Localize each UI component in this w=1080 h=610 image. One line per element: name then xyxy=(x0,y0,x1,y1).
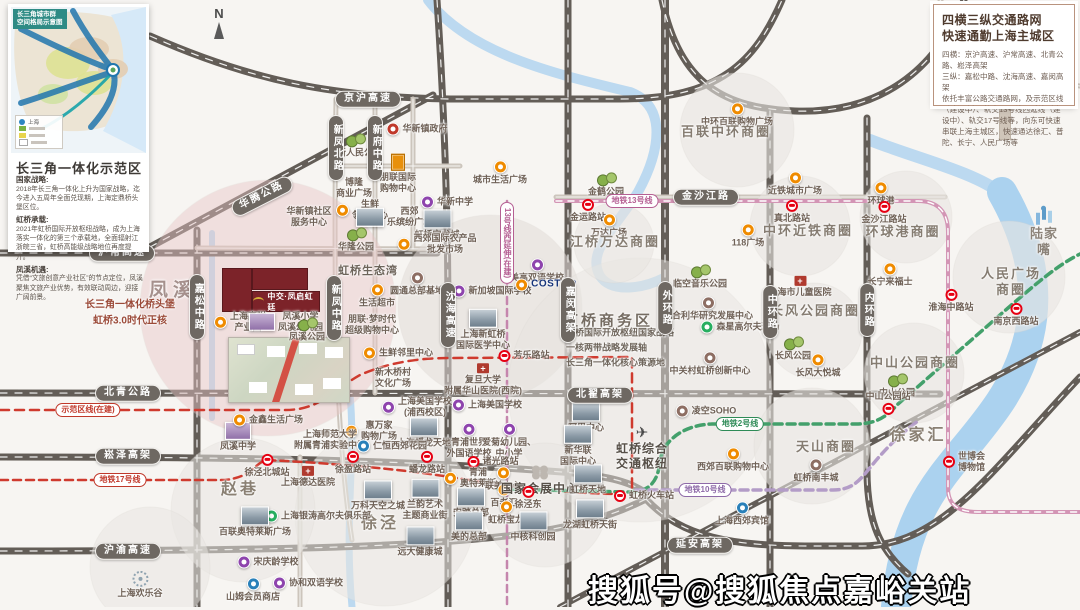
thumb-icon xyxy=(576,499,604,518)
metro-icon xyxy=(421,451,433,463)
tree-icon xyxy=(690,264,709,277)
metro-line-badge: 13号线西延伸(在建) xyxy=(465,202,549,284)
label-text: 中环近铁商圈 xyxy=(763,223,853,239)
traffic-body-line: 四横：京沪高速、沪常高速、北青公路、崧泽高架 xyxy=(942,49,1066,71)
map-label: 金鑫生活广场 xyxy=(233,414,303,427)
map-label: 龙湖虹桥天街 xyxy=(563,499,617,530)
map-label: 陆家嘴 xyxy=(1026,206,1062,259)
label-text: 13号线西延伸(在建) xyxy=(500,202,514,284)
label-text: 生活超市 xyxy=(359,297,395,308)
label-text: 中山公园站 xyxy=(865,391,910,402)
brown-icon xyxy=(676,405,689,418)
map-label: 上海欢乐谷 xyxy=(117,571,162,599)
road-label: 嘉松中路 xyxy=(170,274,224,340)
label-text: 山姆会员商店 xyxy=(226,591,280,602)
dot-icon xyxy=(493,160,506,173)
yangtze-delta-panel: 上海 长三角城市群 空间格局示意图 长三角一体化示范区 国家战略:2018年长三… xyxy=(8,4,149,252)
label-text: 地铁13号线 xyxy=(606,194,659,208)
metro-icon xyxy=(522,486,534,498)
map-label: 中山公园站 xyxy=(865,391,910,415)
thumb-icon xyxy=(364,480,392,499)
label-text: 宋庆龄学校 xyxy=(253,556,298,567)
dot-icon xyxy=(730,102,743,115)
label-text: 近铁城市广场 xyxy=(768,185,822,196)
traffic-body-line: 三纵：嘉松中路、沈海高速、嘉闵高架 xyxy=(942,71,1066,93)
map-label: 赵巷 xyxy=(221,480,259,500)
label-text: 地铁17号线 xyxy=(94,473,147,487)
label-text: 江桥万达商圈 xyxy=(570,234,660,250)
hosp-icon xyxy=(302,466,314,476)
blue-icon xyxy=(735,501,748,514)
label-text: 中环路 xyxy=(762,285,779,339)
inset-header-badge: 长三角城市群 空间格局示意图 xyxy=(13,9,67,29)
project-logo-swoosh-icon xyxy=(253,297,264,306)
map-label: 中山公园商圈 xyxy=(870,355,960,371)
map-label: 复旦大学 附属华山医院(西院) xyxy=(444,363,522,397)
clover-icon xyxy=(530,466,550,481)
map-label: 世博会 博物馆 xyxy=(943,451,985,474)
label-text: 远大健康城 xyxy=(397,546,442,557)
skyline-icon xyxy=(1034,206,1054,225)
map-label: 华新镇社区 服务中心 xyxy=(286,206,331,229)
traffic-title-line2: 快速通勤上海主城区 xyxy=(942,28,1066,44)
map-label: 徐泾北城站 xyxy=(244,454,289,478)
label-text: 环球港商圈 xyxy=(865,224,940,240)
label-text: 徐泾北城站 xyxy=(244,467,289,478)
section-text: 2018年长三角一体化上升为国家战略，迄今进入五周年全面兑现期，上海定鼎桥头堡区… xyxy=(16,185,143,213)
label-text: 百联奥特莱斯广场 xyxy=(219,526,291,537)
legend-bar xyxy=(29,127,45,130)
label-text: 凤溪中学 xyxy=(220,441,256,452)
label-text: 虹桥火车站 xyxy=(629,490,674,501)
dot-icon xyxy=(742,223,755,236)
road-label: 新凤中路 xyxy=(307,275,361,341)
thumb-icon xyxy=(572,402,600,421)
label-text: 上海德达医院 xyxy=(281,477,335,488)
road-label: 沈海高速 xyxy=(421,282,475,348)
ferris-icon xyxy=(132,571,148,587)
label-text: 京沪高速 xyxy=(335,91,401,108)
section-heading: 国家战略: xyxy=(16,175,143,185)
dot-icon xyxy=(788,171,801,184)
map-label: 人民广场商圈 xyxy=(977,266,1046,299)
metro-icon xyxy=(582,199,594,211)
blue-icon xyxy=(246,577,259,590)
label-text: 嘉闵高架 xyxy=(560,277,577,343)
metro-line-badge: 地铁17号线 xyxy=(94,473,147,487)
thumb-icon xyxy=(457,487,485,506)
label-text: 上海欢乐谷 xyxy=(117,588,162,599)
map-label: 南京西路站 xyxy=(993,303,1038,327)
map-label: 华隆公园 xyxy=(338,227,374,252)
label-text: 金沙江路 xyxy=(673,189,739,206)
legend-label: 上海 xyxy=(28,118,39,126)
map-label: 凌空SOHO xyxy=(676,405,737,418)
hongqiao-area-map: 中交·凤启虹廷 京沪高速沪常高速北青公路崧泽高架沪渝高速金沙江路北翟高架延安高架… xyxy=(0,0,1080,607)
compass-n-label: N xyxy=(214,6,223,21)
map-label: 美的总部 xyxy=(451,511,487,542)
thumb-icon xyxy=(564,425,592,444)
metro-icon xyxy=(945,289,957,301)
map-label: 环球港商圈 xyxy=(865,224,940,240)
map-label: 协和双语学校 xyxy=(273,577,343,590)
map-label: 万科天空之城 xyxy=(351,480,405,511)
brown-icon xyxy=(701,296,714,309)
map-label: 长风大悦城 xyxy=(795,353,840,378)
label-text: 内环路 xyxy=(859,283,876,337)
label-text: 示范区线(在建) xyxy=(55,403,120,417)
legend-swatch-icon xyxy=(19,139,28,146)
map-label: 中关村虹桥创新中心 xyxy=(669,351,750,376)
dot-icon xyxy=(363,347,376,360)
label-text: 徐泾东 xyxy=(514,499,541,510)
map-label: 上海美国学校 xyxy=(452,399,522,412)
map-label: 兰韵艺术 主题商业街 xyxy=(402,479,447,522)
dot-icon xyxy=(444,472,457,485)
school-icon xyxy=(452,399,465,412)
metro-line-badge: 地铁2号线 xyxy=(716,417,764,431)
label-text: 淮海中路站 xyxy=(928,302,973,313)
section-text: 凭借“文旅创意产业社区”的节点定位，凤溪聚焦文旅产业优势，有效联动周边，迎接广阔… xyxy=(16,274,143,302)
dot-icon xyxy=(370,283,383,296)
label-text: 新府中路 xyxy=(367,115,384,181)
label-text: 北青公路 xyxy=(95,385,161,402)
map-label: 爱菊幼儿园、 中小学 xyxy=(482,423,536,460)
map-label: 虹桥火车站 xyxy=(614,490,674,502)
metro-line-badge: 地铁10号线 xyxy=(679,483,732,497)
project-plot xyxy=(222,268,252,312)
dot-icon xyxy=(883,262,896,275)
map-label: 金沙江路站 xyxy=(861,201,906,225)
road-label: 延安高架 xyxy=(667,537,733,554)
map-label: 真北路站 xyxy=(774,200,810,224)
label-text: 美的总部 xyxy=(451,531,487,542)
label-text: 沪渝高速 xyxy=(95,543,161,560)
label-text: 徐盈路站 xyxy=(335,464,371,475)
label-text: 金鑫生活广场 xyxy=(249,414,303,425)
traffic-body-line: 依托丰富公路交通路网，及示范区线（建设中）、轨交13号线西延线（建设中）、轨交1… xyxy=(942,93,1066,148)
metro-icon xyxy=(882,403,894,415)
label-text: 世博会 博物馆 xyxy=(958,451,985,474)
tree-icon xyxy=(346,227,365,240)
map-label: 远大健康城 xyxy=(397,526,442,557)
label-text: 外环路 xyxy=(657,281,674,335)
thumb-icon xyxy=(356,208,384,227)
label-text: 协和双语学校 xyxy=(289,577,343,588)
label-text: 新凤北路 xyxy=(328,115,345,181)
traffic-network-panel: 四横三纵交通路网 快速通勤上海主城区 四横：京沪高速、沪常高速、北青公路、崧泽高… xyxy=(933,4,1075,106)
map-label: 上海西郊宾馆 xyxy=(715,501,769,526)
label-text: 上海师范大学 附属青浦实验中学 xyxy=(294,429,366,452)
label-text: 沈海高速 xyxy=(440,282,457,348)
dot-icon xyxy=(874,181,887,194)
school-icon xyxy=(421,196,434,209)
label-text: 龙湖虹桥天街 xyxy=(563,519,617,530)
plane-icon xyxy=(633,425,651,441)
label-text: 蟠龙路站 xyxy=(409,464,445,475)
thumb-icon xyxy=(455,511,483,530)
thumb-icon xyxy=(410,417,438,436)
legend-swatch-icon xyxy=(19,133,26,138)
metro-icon xyxy=(1010,303,1022,315)
label-text: 地铁10号线 xyxy=(679,483,732,497)
map-label: 天山商圈 xyxy=(796,439,856,455)
map-label: 西郊百联购物中心 xyxy=(697,447,769,472)
label-text: 华新镇政府 xyxy=(402,123,447,134)
thumb-icon xyxy=(519,511,547,530)
road-label: 内环路 xyxy=(846,283,888,337)
map-label: 百联中环商圈 xyxy=(681,124,771,140)
map-label: 近铁城市广场 xyxy=(768,171,822,196)
label-text: 中核科创园 xyxy=(510,531,555,542)
label-text: 陆家嘴 xyxy=(1026,226,1062,259)
label-text: 上海美国学校 (浦西校区) xyxy=(398,396,452,419)
map-label: 新木桥村 文化广场 xyxy=(375,367,411,390)
dot-icon xyxy=(602,213,615,226)
map-label: 徐家汇 xyxy=(889,426,946,446)
label-text: 中山公园商圈 xyxy=(870,355,960,371)
legend-shanghai-icon xyxy=(19,119,25,125)
legend-bar xyxy=(31,141,47,144)
road-label: 京沪高速 xyxy=(335,91,401,108)
map-label: 中核科创园 xyxy=(510,511,555,542)
label-text: 中关村虹桥创新中心 xyxy=(669,365,750,376)
thumbp-icon xyxy=(249,313,275,331)
road-label: 金沙江路 xyxy=(673,189,739,206)
map-label: 山姆会员商店 xyxy=(226,577,280,602)
map-label: 虹桥综合 交通枢纽 xyxy=(616,425,668,472)
road-label: 中环路 xyxy=(749,285,791,339)
map-label: 百联奥特莱斯广场 xyxy=(219,506,291,537)
label-text: 上海银涛高尔夫俱乐部 xyxy=(281,510,371,521)
label-text: 赵巷 xyxy=(221,480,259,500)
label-text: 兰韵艺术 主题商业街 xyxy=(402,499,447,522)
label-text: 新木桥村 文化广场 xyxy=(375,367,411,390)
label-text: 嘉松中路 xyxy=(189,274,206,340)
map-label: 芳乐路站 xyxy=(498,350,549,362)
metro-icon xyxy=(347,451,359,463)
dot-icon xyxy=(233,414,246,427)
thumb-icon xyxy=(423,209,451,228)
map-label: 上海美国学校 (浦西校区) xyxy=(382,396,452,419)
delta-map-graphic: 上海 长三角城市群 空间格局示意图 xyxy=(11,7,146,153)
label-text: 上海西郊宾馆 xyxy=(715,515,769,526)
school-icon xyxy=(273,577,286,590)
label-text: 崧泽高架 xyxy=(95,448,161,465)
hosp-icon xyxy=(477,363,489,373)
label-text: 华隆公园 xyxy=(338,241,374,252)
aerial-road-graphic xyxy=(267,337,301,403)
road-label: 崧泽高架 xyxy=(95,448,161,465)
school-icon xyxy=(502,423,515,436)
legend-bar xyxy=(29,134,45,137)
school-icon xyxy=(462,423,475,436)
hosp-icon xyxy=(794,276,806,286)
thumb-icon xyxy=(406,526,434,545)
tree-icon xyxy=(887,373,906,386)
metro-icon xyxy=(786,200,798,212)
label-text: 新凤中路 xyxy=(326,275,343,341)
label-text: 虹桥天地 xyxy=(570,484,606,495)
compass-needle-icon xyxy=(214,22,224,39)
label-text: 南京西路站 xyxy=(993,316,1038,327)
section-heading: 虹桥承载: xyxy=(16,215,143,225)
label-text: 芳乐路站 xyxy=(513,350,549,361)
project-plot xyxy=(252,268,308,290)
map-label: 江桥万达商圈 xyxy=(570,234,660,250)
road-label: 嘉闵高架 xyxy=(541,277,595,343)
metro-line-badge: 示范区线(在建) xyxy=(55,403,120,417)
map-label: 蟠龙路站 xyxy=(409,451,445,475)
metro-icon xyxy=(943,456,955,468)
label-text: 延安高架 xyxy=(667,537,733,554)
metro-icon xyxy=(878,201,890,213)
label-text: 百联中环商圈 xyxy=(681,124,771,140)
section-heading: 凤溪机遇: xyxy=(16,265,143,275)
label-text: 城市生活广场 xyxy=(473,174,527,185)
label-text: 西郊百联购物中心 xyxy=(697,461,769,472)
map-label: 虹桥南丰城 xyxy=(793,458,838,483)
aerial-photo-chips xyxy=(237,344,255,355)
map-label: 上海师范大学 附属青浦实验中学 xyxy=(294,429,366,452)
road-label: 沪渝高速 xyxy=(95,543,161,560)
inset-body: 国家战略:2018年长三角一体化上升为国家战略，迄今进入五周年全面兑现期，上海定… xyxy=(16,175,143,305)
label-text: 虹桥南丰城 xyxy=(793,472,838,483)
thumb-icon xyxy=(574,464,602,483)
map-label: 虹桥天地 xyxy=(570,464,606,495)
map-label: 118广场 xyxy=(732,223,765,248)
road-label: 北青公路 xyxy=(95,385,161,402)
school-icon xyxy=(237,556,250,569)
map-label: 生鲜邻里中心 xyxy=(363,347,433,360)
road-label: 外环路 xyxy=(644,281,686,335)
map-label: 新华联 国际中心 xyxy=(560,425,596,468)
label-text: 虹桥综合 交通枢纽 xyxy=(616,442,668,472)
brown-icon xyxy=(809,458,822,471)
watermark: 搜狐号@搜狐焦点嘉峪关站 xyxy=(588,566,971,610)
brown-icon xyxy=(703,351,716,364)
green-icon xyxy=(700,321,713,334)
road-label: 北翟高架 xyxy=(567,387,633,404)
label-text: 复旦大学 附属华山医院(西院) xyxy=(444,374,522,397)
label-text: 长风大悦城 xyxy=(795,367,840,378)
fengxi-aerial-inset xyxy=(228,337,350,403)
label-text: 徐家汇 xyxy=(889,426,946,446)
traffic-title-line1: 四横三纵交通路网 xyxy=(942,12,1066,28)
legend-swatch-icon xyxy=(19,126,26,131)
label-text: 天山商圈 xyxy=(796,439,856,455)
dot-icon xyxy=(726,447,739,460)
label-text: 北翟高架 xyxy=(567,387,633,404)
dot-icon xyxy=(336,204,349,217)
map-label: 中环近铁商圈 xyxy=(763,223,853,239)
map-label: 徐盈路站 xyxy=(335,451,371,475)
map-label: 宋庆龄学校 xyxy=(237,556,298,569)
label-text: 华新镇社区 服务中心 xyxy=(286,206,331,229)
tree-icon xyxy=(596,172,615,185)
label-text: 人民广场商圈 xyxy=(977,266,1046,299)
section-text: 2021年虹桥国际开放枢纽战略，成为上海落实一体化的第三个承载地，全面辐射江浙皖… xyxy=(16,225,143,262)
thumb-icon xyxy=(241,506,269,525)
label-text: 118广场 xyxy=(732,237,765,248)
label-text: 生鲜邻里中心 xyxy=(379,347,433,358)
dot-icon xyxy=(397,238,410,251)
road-label: 新府中路 xyxy=(348,115,402,181)
map-label: 徐泾东 xyxy=(514,486,541,510)
map-label: 城市生活广场 xyxy=(473,160,527,185)
label-text: 上海美国学校 xyxy=(468,399,522,410)
map-label: 淮海中路站 xyxy=(928,289,973,313)
metro-icon xyxy=(498,350,510,362)
label-text: 地铁2号线 xyxy=(716,417,764,431)
metro-line-badge: 地铁13号线 xyxy=(606,194,659,208)
compass: N xyxy=(214,6,224,39)
metro-icon xyxy=(261,454,273,466)
school-icon xyxy=(382,401,395,414)
map-legend: 上海 xyxy=(15,115,63,149)
dot-icon xyxy=(811,353,824,366)
label-text: 凌空SOHO xyxy=(692,405,737,416)
thumb-icon xyxy=(411,479,439,498)
